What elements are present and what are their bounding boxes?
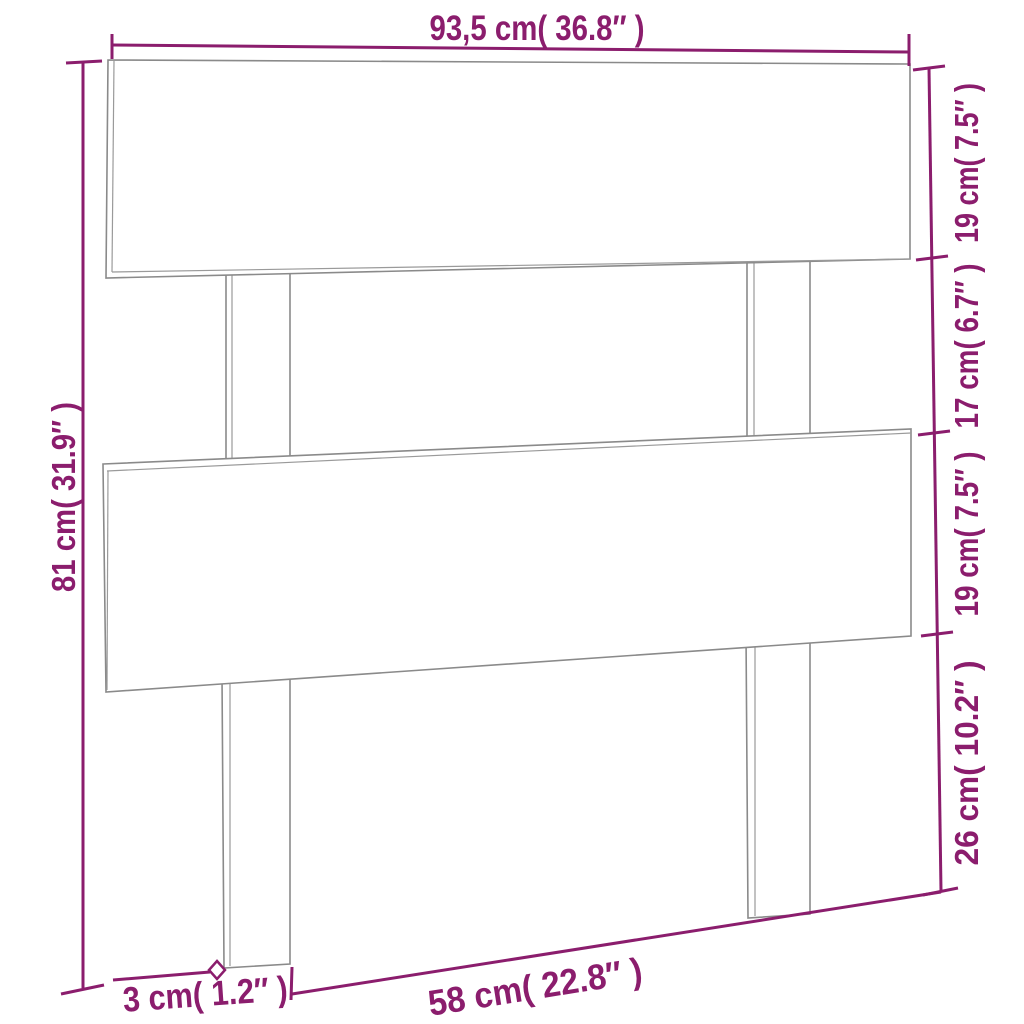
left-leg	[222, 671, 290, 968]
left-post	[226, 268, 290, 472]
bottom-dimension-tick	[291, 967, 292, 1000]
right-post	[747, 260, 810, 447]
top-slat	[106, 60, 910, 278]
right-segment-label-4: 26 cm( 10.2″ )	[948, 661, 985, 866]
right-segment-label-1: 19 cm( 7.5″ )	[948, 83, 985, 243]
left-height-label: 81 cm( 31.9″ )	[45, 402, 82, 592]
dimension-diagram-page: 93,5 cm( 36.8″ ) 81 cm( 31.9″ ) 19 cm( 7…	[0, 0, 1024, 1024]
left-dimension-tick	[66, 61, 102, 63]
top-width-label: 93,5 cm( 36.8″ )	[430, 9, 645, 48]
right-segment-label-3: 19 cm( 7.5″ )	[948, 452, 985, 617]
headboard-dimension-diagram: 93,5 cm( 36.8″ ) 81 cm( 31.9″ ) 19 cm( 7…	[0, 0, 1024, 1024]
right-segment-label-2: 17 cm( 6.7″ )	[948, 264, 985, 429]
